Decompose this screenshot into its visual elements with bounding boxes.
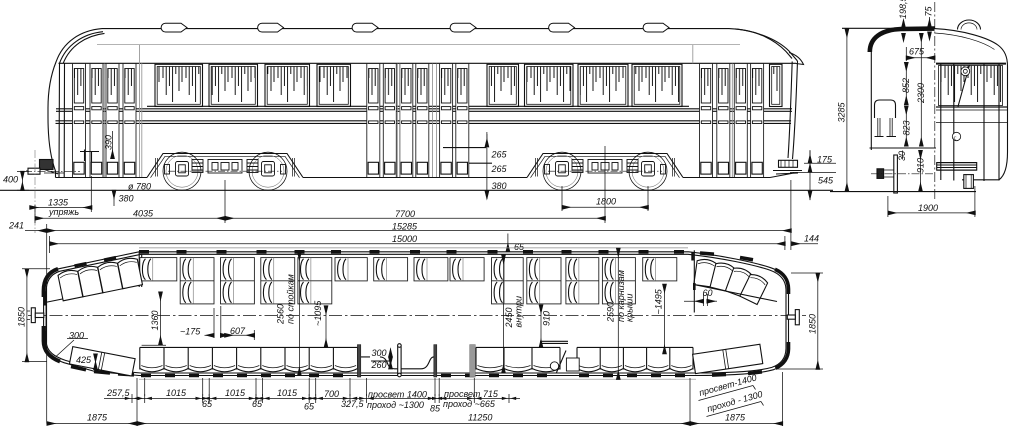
svg-text:910: 910 bbox=[542, 311, 552, 326]
svg-text:144: 144 bbox=[804, 233, 819, 243]
svg-text:198,5: 198,5 bbox=[898, 0, 908, 19]
svg-text:65: 65 bbox=[252, 399, 263, 409]
svg-text:675: 675 bbox=[909, 47, 925, 57]
svg-text:1900: 1900 bbox=[918, 203, 938, 213]
svg-text:1850: 1850 bbox=[16, 307, 26, 327]
svg-text:4035: 4035 bbox=[133, 209, 154, 219]
svg-text:2450: 2450 bbox=[504, 307, 514, 328]
svg-text:300: 300 bbox=[69, 331, 84, 341]
svg-text:1015: 1015 bbox=[277, 388, 298, 398]
svg-text:85: 85 bbox=[430, 404, 441, 414]
svg-text:300: 300 bbox=[372, 348, 387, 358]
svg-text:15000: 15000 bbox=[392, 234, 417, 244]
svg-text:1875: 1875 bbox=[725, 413, 746, 423]
svg-text:65: 65 bbox=[304, 401, 315, 411]
svg-text:1875: 1875 bbox=[87, 413, 108, 423]
svg-text:265: 265 bbox=[491, 150, 508, 160]
svg-text:по стойкам: по стойкам bbox=[286, 274, 296, 324]
svg-text:упряжь: упряжь bbox=[48, 207, 79, 217]
svg-text:2560: 2560 bbox=[276, 304, 286, 325]
svg-text:607: 607 bbox=[230, 326, 246, 336]
svg-text:257,5: 257,5 bbox=[106, 388, 131, 398]
svg-text:700: 700 bbox=[324, 389, 339, 399]
svg-text:260: 260 bbox=[371, 360, 387, 370]
svg-text:11250: 11250 bbox=[468, 413, 492, 423]
svg-text:425: 425 bbox=[76, 355, 92, 365]
svg-text:проход ~665: проход ~665 bbox=[443, 399, 496, 409]
svg-text:~175: ~175 bbox=[180, 327, 201, 337]
svg-text:проход ~1300: проход ~1300 bbox=[367, 400, 424, 410]
svg-text:380: 380 bbox=[492, 181, 507, 191]
svg-text:15285: 15285 bbox=[392, 222, 418, 232]
svg-text:~1495: ~1495 bbox=[654, 288, 664, 314]
svg-text:1015: 1015 bbox=[166, 388, 187, 398]
svg-text:75: 75 bbox=[924, 5, 934, 16]
svg-text:327,5: 327,5 bbox=[341, 399, 365, 409]
svg-text:65: 65 bbox=[202, 399, 213, 409]
svg-text:241: 241 bbox=[8, 221, 24, 231]
svg-text:3285: 3285 bbox=[837, 101, 847, 122]
svg-text:крыши: крыши bbox=[625, 294, 635, 322]
svg-text:380: 380 bbox=[119, 193, 134, 203]
svg-text:2590: 2590 bbox=[606, 302, 616, 323]
svg-text:просвет 715: просвет 715 bbox=[444, 389, 499, 399]
svg-text:c: c bbox=[954, 134, 957, 141]
svg-text:265: 265 bbox=[491, 164, 508, 174]
svg-text:400: 400 bbox=[3, 175, 18, 185]
svg-text:1850: 1850 bbox=[808, 314, 818, 334]
svg-text:1015: 1015 bbox=[225, 388, 246, 398]
svg-text:просвет 1400: просвет 1400 bbox=[368, 390, 427, 400]
svg-text:1800: 1800 bbox=[596, 196, 616, 206]
svg-text:внутри: внутри bbox=[514, 296, 524, 328]
svg-text:30: 30 bbox=[897, 151, 907, 161]
svg-text:390: 390 bbox=[104, 135, 114, 150]
svg-text:~1095: ~1095 bbox=[313, 300, 323, 326]
svg-text:7700: 7700 bbox=[395, 209, 415, 219]
svg-text:1360: 1360 bbox=[150, 310, 160, 330]
svg-text:545: 545 bbox=[818, 176, 834, 186]
svg-text:ø 780: ø 780 bbox=[128, 182, 151, 192]
